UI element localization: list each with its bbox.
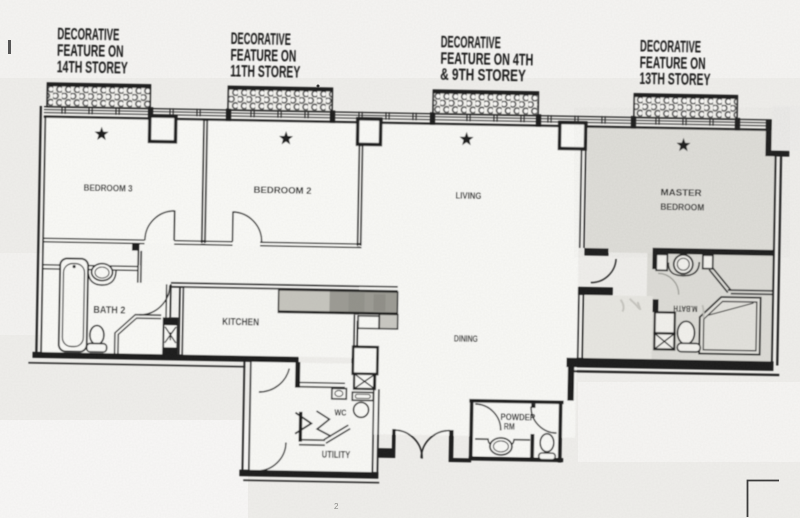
svg-text:2: 2 [334,502,339,511]
